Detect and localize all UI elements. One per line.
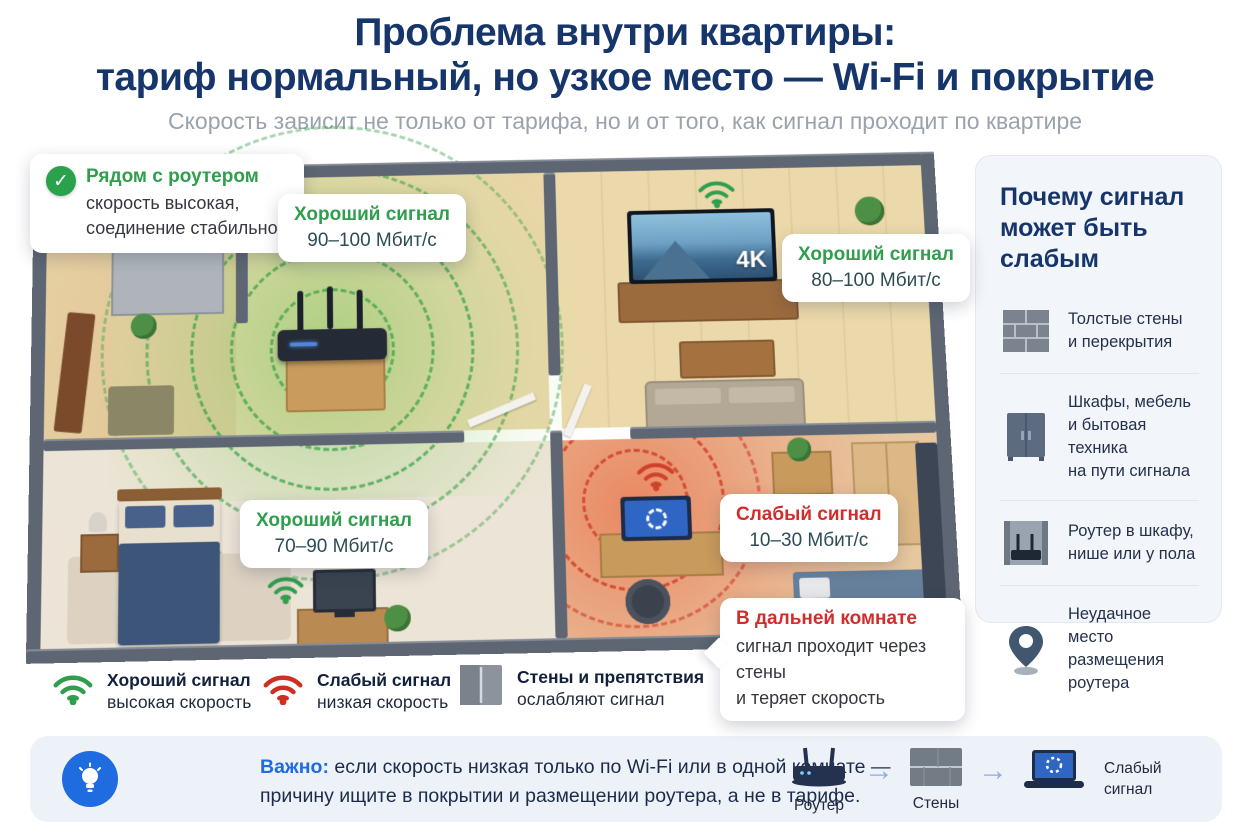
tv-4k-badge: 4K: [736, 247, 767, 275]
router-icon: [788, 744, 850, 795]
sidebar-item-router-placement: Роутер в шкафу, нише или у пола: [1000, 500, 1199, 585]
header: Проблема внутри квартиры: тариф нормальн…: [0, 10, 1250, 135]
arrow-right-icon: →: [978, 754, 1008, 788]
flow-walls: Стены: [908, 746, 964, 813]
router-antenna: [357, 290, 363, 333]
router-antenna: [297, 291, 303, 334]
legend-subtitle: ослабляют сигнал: [517, 688, 704, 710]
wifi-weak-icon: [635, 460, 676, 497]
laptop: [620, 496, 692, 542]
important-label: Важно:: [260, 756, 329, 778]
callout-title: Хороший сигнал: [294, 204, 450, 226]
sidebar-item-bad-location: Неудачное место размещения роутера: [1000, 585, 1199, 712]
sidebar-item-thick-walls: Толстые стены и перекрытия: [1000, 289, 1199, 373]
wifi-weak-icon: [262, 673, 304, 710]
wifi-router: [278, 328, 388, 362]
signal-flow-diagram: Роутер → Стены → Слабый сигнал: [788, 744, 1162, 814]
laptop-loading-icon: [1022, 748, 1086, 797]
sidebar-why-weak: Почему сигнал может быть слабым Толстые …: [975, 155, 1222, 623]
callout-body: сигнал проходит через стены и теряет ско…: [736, 633, 949, 711]
lightbulb-icon: [62, 751, 118, 807]
wall-icon: [458, 663, 504, 712]
legend-good-signal: Хороший сигнал высокая скорость: [52, 669, 251, 713]
sidebar-item-label: Неудачное место размещения роутера: [1068, 603, 1199, 695]
callout-value: 80–100 Мбит/с: [798, 270, 954, 292]
flow-result-label: Слабый сигнал: [1104, 758, 1162, 800]
doormat: [108, 385, 174, 436]
loading-spinner-icon: [645, 508, 667, 530]
sidebar-item-label: Шкафы, мебель и бытовая техника на пути …: [1068, 391, 1199, 483]
far-room-callout: В дальней комнате сигнал проходит через …: [720, 598, 965, 721]
lamp: [89, 512, 107, 532]
callout-title: Хороший сигнал: [798, 244, 954, 266]
callout-title: В дальней комнате: [736, 608, 949, 630]
brick-wall-icon: [1000, 306, 1052, 356]
legend-subtitle: низкая скорость: [317, 691, 451, 713]
page-subtitle: Скорость зависит не только от тарифа, но…: [0, 108, 1250, 135]
nightstand: [80, 534, 119, 573]
legend-title: Слабый сигнал: [317, 669, 451, 691]
desktop-monitor: [313, 569, 376, 613]
wifi-good-icon: [266, 574, 305, 609]
router-in-niche-icon: [1000, 518, 1052, 568]
signal-weak-callout: Слабый сигнал 10–30 Мбит/с: [720, 494, 898, 562]
legend-title: Хороший сигнал: [107, 669, 251, 691]
router-cabinet: [286, 353, 386, 412]
callout-value: 70–90 Мбит/с: [256, 536, 412, 558]
arrow-right-icon: →: [864, 754, 894, 788]
legend-title: Стены и препятствия: [517, 666, 704, 688]
coffee-table: [679, 339, 776, 378]
legend-walls: Стены и препятствия ослабляют сигнал: [458, 663, 704, 712]
signal-70-callout: Хороший сигнал 70–90 Мбит/с: [240, 500, 428, 568]
callout-title: Хороший сигнал: [256, 510, 412, 532]
sidebar-item-label: Толстые стены и перекрытия: [1068, 308, 1182, 354]
callout-value: 10–30 Мбит/с: [736, 530, 882, 552]
location-pin-icon: [1000, 622, 1052, 676]
sidebar-title: Почему сигнал может быть слабым: [1000, 182, 1199, 275]
flow-router: Роутер: [788, 744, 850, 815]
furniture-cabinet-icon: [1000, 411, 1052, 463]
infographic-page: Проблема внутри квартиры: тариф нормальн…: [0, 0, 1250, 833]
wall-icon: [908, 746, 964, 793]
flow-label: Роутер: [794, 797, 844, 815]
signal-80-callout: Хороший сигнал 80–100 Мбит/с: [782, 234, 970, 302]
wifi-good-icon: [52, 673, 94, 710]
sofa: [644, 378, 806, 431]
legend-subtitle: высокая скорость: [107, 691, 251, 713]
callout-body: скорость высокая, соединение стабильное: [86, 191, 288, 241]
callout-title: Слабый сигнал: [736, 504, 882, 526]
apartment-floorplan: 4K: [30, 148, 965, 660]
bed: [118, 499, 220, 645]
page-title-line2: тариф нормальный, но узкое место — Wi-Fi…: [0, 55, 1250, 100]
important-note-bar: Важно: если скорость низкая только по Wi…: [30, 736, 1222, 822]
tv: 4K: [627, 208, 778, 284]
page-title-line1: Проблема внутри квартиры:: [0, 10, 1250, 55]
tv-screen: 4K: [631, 212, 773, 280]
flow-label: Стены: [913, 795, 959, 813]
tv-stand: [617, 279, 799, 323]
flow-laptop: [1022, 748, 1086, 797]
sidebar-item-label: Роутер в шкафу, нише или у пола: [1068, 520, 1195, 566]
wifi-good-icon: [696, 178, 737, 213]
sidebar-items: Толстые стены и перекрытия Шкафы, мебель…: [1000, 289, 1199, 712]
check-icon: ✓: [46, 166, 76, 196]
callout-value: 90–100 Мбит/с: [294, 230, 450, 252]
router-antenna: [327, 286, 333, 329]
laptop-screen: [624, 500, 688, 537]
sidebar-item-furniture: Шкафы, мебель и бытовая техника на пути …: [1000, 373, 1199, 500]
callout-title: Рядом с роутером: [86, 166, 288, 188]
near-router-callout: ✓ Рядом с роутером скорость высокая, сое…: [30, 154, 304, 253]
legend-weak-signal: Слабый сигнал низкая скорость: [262, 669, 451, 713]
signal-90-callout: Хороший сигнал 90–100 Мбит/с: [278, 194, 466, 262]
